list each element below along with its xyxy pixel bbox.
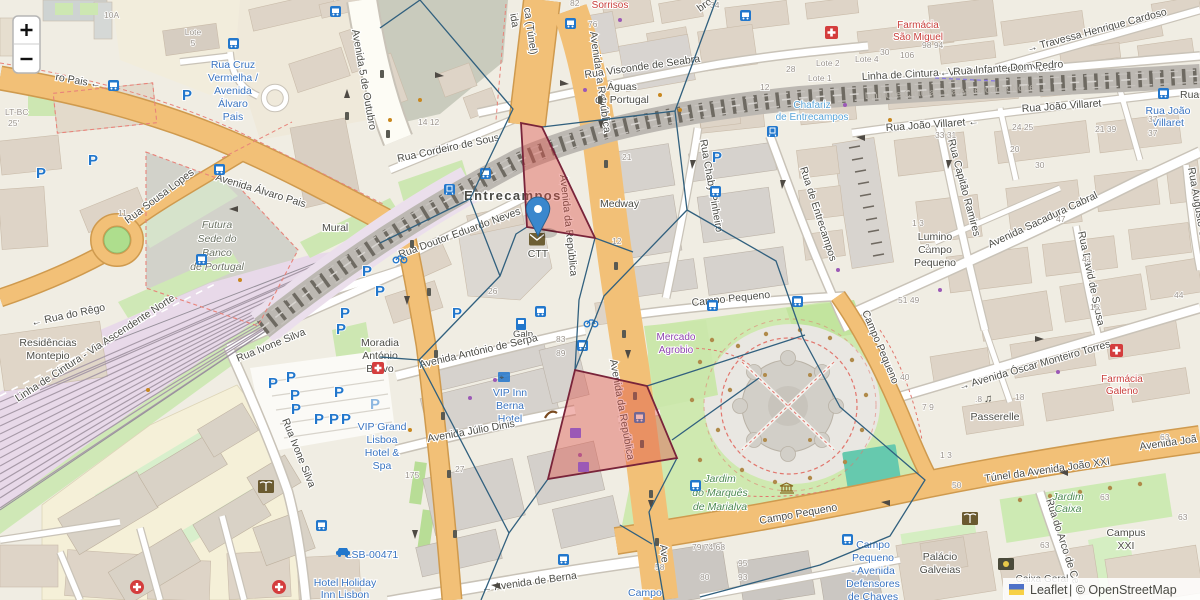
svg-text:P: P: [36, 165, 46, 182]
svg-text:P: P: [341, 411, 351, 428]
svg-text:Chafariz: Chafariz: [793, 100, 830, 111]
svg-text:P: P: [375, 283, 385, 300]
svg-text:P: P: [340, 305, 350, 322]
svg-text:Montepio: Montepio: [26, 350, 69, 362]
svg-text:80: 80: [700, 572, 710, 582]
svg-text:Pais: Pais: [223, 111, 243, 123]
svg-text:VIP Inn: VIP Inn: [493, 387, 527, 399]
svg-text:Pequeno: Pequeno: [914, 257, 956, 269]
svg-text:P: P: [334, 384, 344, 401]
svg-text:Galveias: Galveias: [920, 564, 961, 576]
svg-text:Agrobio: Agrobio: [659, 345, 694, 356]
svg-text:XXI: XXI: [1118, 540, 1135, 552]
svg-text:79 74 68: 79 74 68: [692, 542, 725, 552]
svg-text:5: 5: [191, 38, 196, 48]
svg-text:21: 21: [622, 152, 632, 162]
svg-text:P: P: [268, 375, 278, 392]
svg-text:Moradia: Moradia: [361, 337, 399, 349]
svg-text:P: P: [88, 152, 98, 169]
svg-text:Campo: Campo: [918, 244, 952, 256]
svg-text:Rua Cruz: Rua Cruz: [211, 59, 255, 71]
svg-text:7 9: 7 9: [922, 402, 934, 412]
svg-text:Hotel Holiday: Hotel Holiday: [314, 577, 377, 589]
svg-text:11: 11: [118, 208, 127, 218]
svg-text:30: 30: [1035, 160, 1045, 170]
svg-text:António: António: [362, 350, 398, 362]
svg-text:106: 106: [900, 50, 914, 60]
svg-text:50: 50: [952, 480, 962, 490]
svg-text:40: 40: [900, 372, 910, 382]
svg-text:Galeno: Galeno: [1106, 386, 1139, 397]
svg-text:33 31: 33 31: [935, 130, 957, 140]
svg-text:CTT: CTT: [528, 248, 549, 260]
svg-text:Farmácia: Farmácia: [1101, 374, 1143, 385]
svg-text:Spa: Spa: [373, 460, 392, 472]
svg-text:de Chaves: de Chaves: [848, 591, 898, 600]
svg-text:28: 28: [786, 64, 796, 74]
svg-text:Inn Lisbon: Inn Lisbon: [321, 589, 370, 600]
svg-text:⌖: ⌖: [500, 373, 505, 382]
svg-text:Farmácia: Farmácia: [897, 20, 939, 31]
svg-text:♫: ♫: [984, 393, 992, 405]
svg-text:P: P: [291, 401, 301, 418]
svg-text:P: P: [336, 321, 346, 338]
svg-text:Lisboa: Lisboa: [367, 434, 398, 446]
svg-text:P: P: [182, 87, 192, 104]
svg-text:Lote: Lote: [185, 27, 202, 37]
svg-text:25': 25': [8, 118, 19, 128]
svg-text:Berna: Berna: [496, 400, 524, 412]
svg-text:de Marialva: de Marialva: [693, 501, 747, 513]
svg-text:P: P: [286, 369, 296, 386]
svg-text:51 49: 51 49: [898, 295, 920, 305]
svg-text:Defensores: Defensores: [846, 578, 900, 590]
svg-text:Lote 2: Lote 2: [816, 58, 840, 68]
svg-text:de Portugal: de Portugal: [595, 94, 649, 106]
svg-text:Lote 1: Lote 1: [808, 73, 832, 83]
svg-text:175: 175: [405, 470, 419, 480]
svg-text:89: 89: [556, 348, 566, 358]
svg-text:Hotel &: Hotel &: [365, 447, 399, 459]
svg-text:Lumino: Lumino: [918, 231, 953, 243]
svg-text:Avenida: Avenida: [214, 85, 252, 97]
svg-text:| © OpenStreetMap: | © OpenStreetMap: [1069, 583, 1177, 597]
svg-text:98 94: 98 94: [922, 40, 944, 50]
svg-text:93: 93: [738, 572, 748, 582]
svg-text:Ave: Ave: [657, 544, 671, 563]
svg-text:Pequeno: Pequeno: [852, 552, 894, 564]
svg-text:de Entrecampos: de Entrecampos: [776, 112, 849, 123]
svg-text:Vermelha /: Vermelha /: [208, 72, 258, 84]
svg-text:41: 41: [1082, 254, 1092, 264]
svg-text:P: P: [314, 411, 324, 428]
svg-text:Sede do: Sede do: [197, 233, 236, 245]
svg-text:Lote 4: Lote 4: [855, 54, 879, 64]
svg-text:Rua J: Rua J: [1180, 89, 1200, 101]
svg-text:21 39: 21 39: [1095, 124, 1117, 134]
svg-text:Mercado: Mercado: [657, 332, 696, 343]
svg-text:Jardim: Jardim: [1051, 491, 1084, 503]
svg-text:P: P: [362, 263, 372, 280]
svg-text:VIP Grand: VIP Grand: [358, 421, 407, 433]
svg-text:58: 58: [655, 562, 665, 572]
svg-text:P: P: [452, 305, 462, 322]
svg-text:37: 37: [1148, 114, 1158, 124]
svg-text:63: 63: [1160, 432, 1170, 442]
svg-text:Leaflet: Leaflet: [1030, 583, 1068, 597]
svg-text:P: P: [370, 396, 380, 413]
svg-text:Campus: Campus: [1106, 527, 1145, 539]
svg-text:Sorrisos: Sorrisos: [592, 0, 629, 11]
svg-text:Jardim: Jardim: [703, 473, 736, 485]
svg-text:27: 27: [455, 464, 465, 474]
svg-text:P: P: [329, 411, 339, 428]
svg-text:Residências: Residências: [19, 337, 76, 349]
svg-text:Campo: Campo: [628, 587, 662, 599]
svg-text:LSB-00471: LSB-00471: [346, 549, 399, 561]
svg-text:Mural: Mural: [322, 222, 348, 234]
svg-text:Álvaro: Álvaro: [218, 97, 248, 110]
svg-text:47: 47: [1056, 214, 1066, 224]
svg-text:95: 95: [738, 558, 748, 568]
svg-text:18: 18: [1015, 392, 1025, 402]
svg-text:20: 20: [1010, 144, 1020, 154]
svg-text:Águas: Águas: [607, 80, 637, 93]
svg-text:1 3: 1 3: [940, 450, 952, 460]
svg-text:Palácio: Palácio: [923, 551, 958, 563]
svg-text:.8: .8: [975, 394, 982, 404]
svg-text:63: 63: [1040, 540, 1050, 550]
svg-text:37: 37: [1148, 128, 1158, 138]
svg-text:P: P: [712, 149, 722, 166]
svg-text:76: 76: [588, 19, 598, 29]
svg-text:Medway: Medway: [600, 198, 640, 210]
svg-text:82: 82: [570, 0, 580, 8]
svg-text:83: 83: [556, 334, 566, 344]
svg-text:1 3: 1 3: [912, 218, 924, 228]
svg-text:14 12: 14 12: [418, 117, 440, 127]
svg-text:30: 30: [880, 47, 890, 57]
svg-text:63: 63: [1178, 512, 1188, 522]
svg-text:2: 2: [925, 242, 930, 252]
svg-text:63: 63: [1100, 492, 1110, 502]
svg-text:Caixa: Caixa: [1055, 503, 1082, 515]
svg-text:Futura: Futura: [202, 219, 233, 231]
svg-text:24 25: 24 25: [1012, 122, 1034, 132]
svg-text:15: 15: [1090, 302, 1100, 312]
svg-text:10A: 10A: [104, 10, 119, 20]
svg-text:LT-BC: LT-BC: [5, 107, 28, 117]
svg-text:- Avenida: - Avenida: [851, 565, 895, 577]
svg-text:Passerelle: Passerelle: [970, 411, 1019, 423]
svg-text:Campo: Campo: [856, 539, 890, 551]
svg-text:ida: ida: [507, 12, 521, 28]
svg-text:12: 12: [760, 82, 770, 92]
svg-text:44: 44: [1174, 290, 1184, 300]
